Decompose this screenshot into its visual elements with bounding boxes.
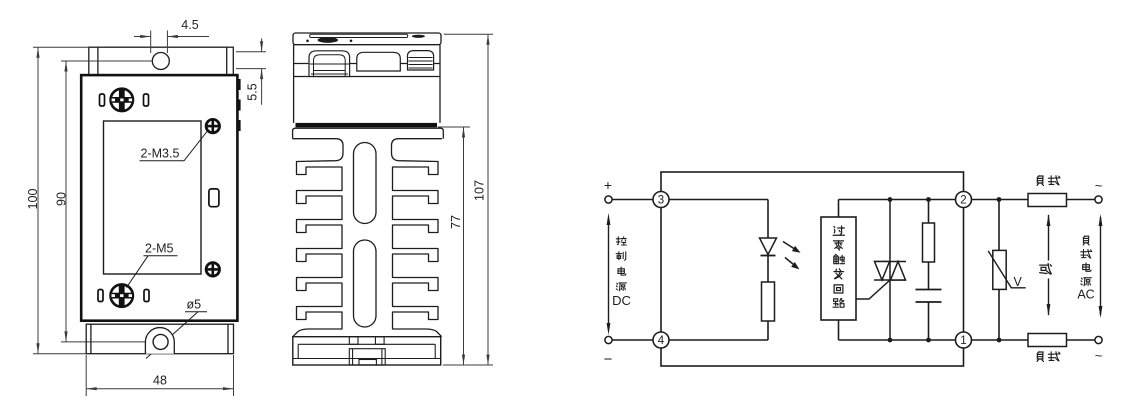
svg-text:5.5: 5.5: [246, 83, 260, 100]
svg-text:107: 107: [473, 180, 487, 201]
svg-text:2-M3.5: 2-M3.5: [141, 147, 180, 161]
svg-text:48: 48: [153, 374, 167, 388]
svg-text:1: 1: [960, 335, 966, 347]
svg-text:4.5: 4.5: [181, 18, 198, 32]
svg-text:77: 77: [449, 215, 463, 229]
svg-text:~: ~: [1095, 178, 1103, 193]
svg-text:DC: DC: [612, 293, 631, 308]
svg-text:−: −: [604, 351, 613, 368]
svg-text:100: 100: [26, 189, 40, 210]
svg-text:V: V: [1014, 275, 1023, 289]
svg-text:3: 3: [658, 195, 664, 207]
svg-text:+: +: [604, 177, 612, 193]
svg-text:2-M5: 2-M5: [145, 242, 174, 256]
svg-text:AC: AC: [1077, 288, 1094, 302]
svg-text:2: 2: [960, 195, 966, 207]
svg-text:90: 90: [55, 192, 69, 206]
svg-text:4: 4: [658, 335, 665, 347]
svg-text:~: ~: [1095, 348, 1103, 363]
svg-text:ø5: ø5: [187, 298, 202, 312]
